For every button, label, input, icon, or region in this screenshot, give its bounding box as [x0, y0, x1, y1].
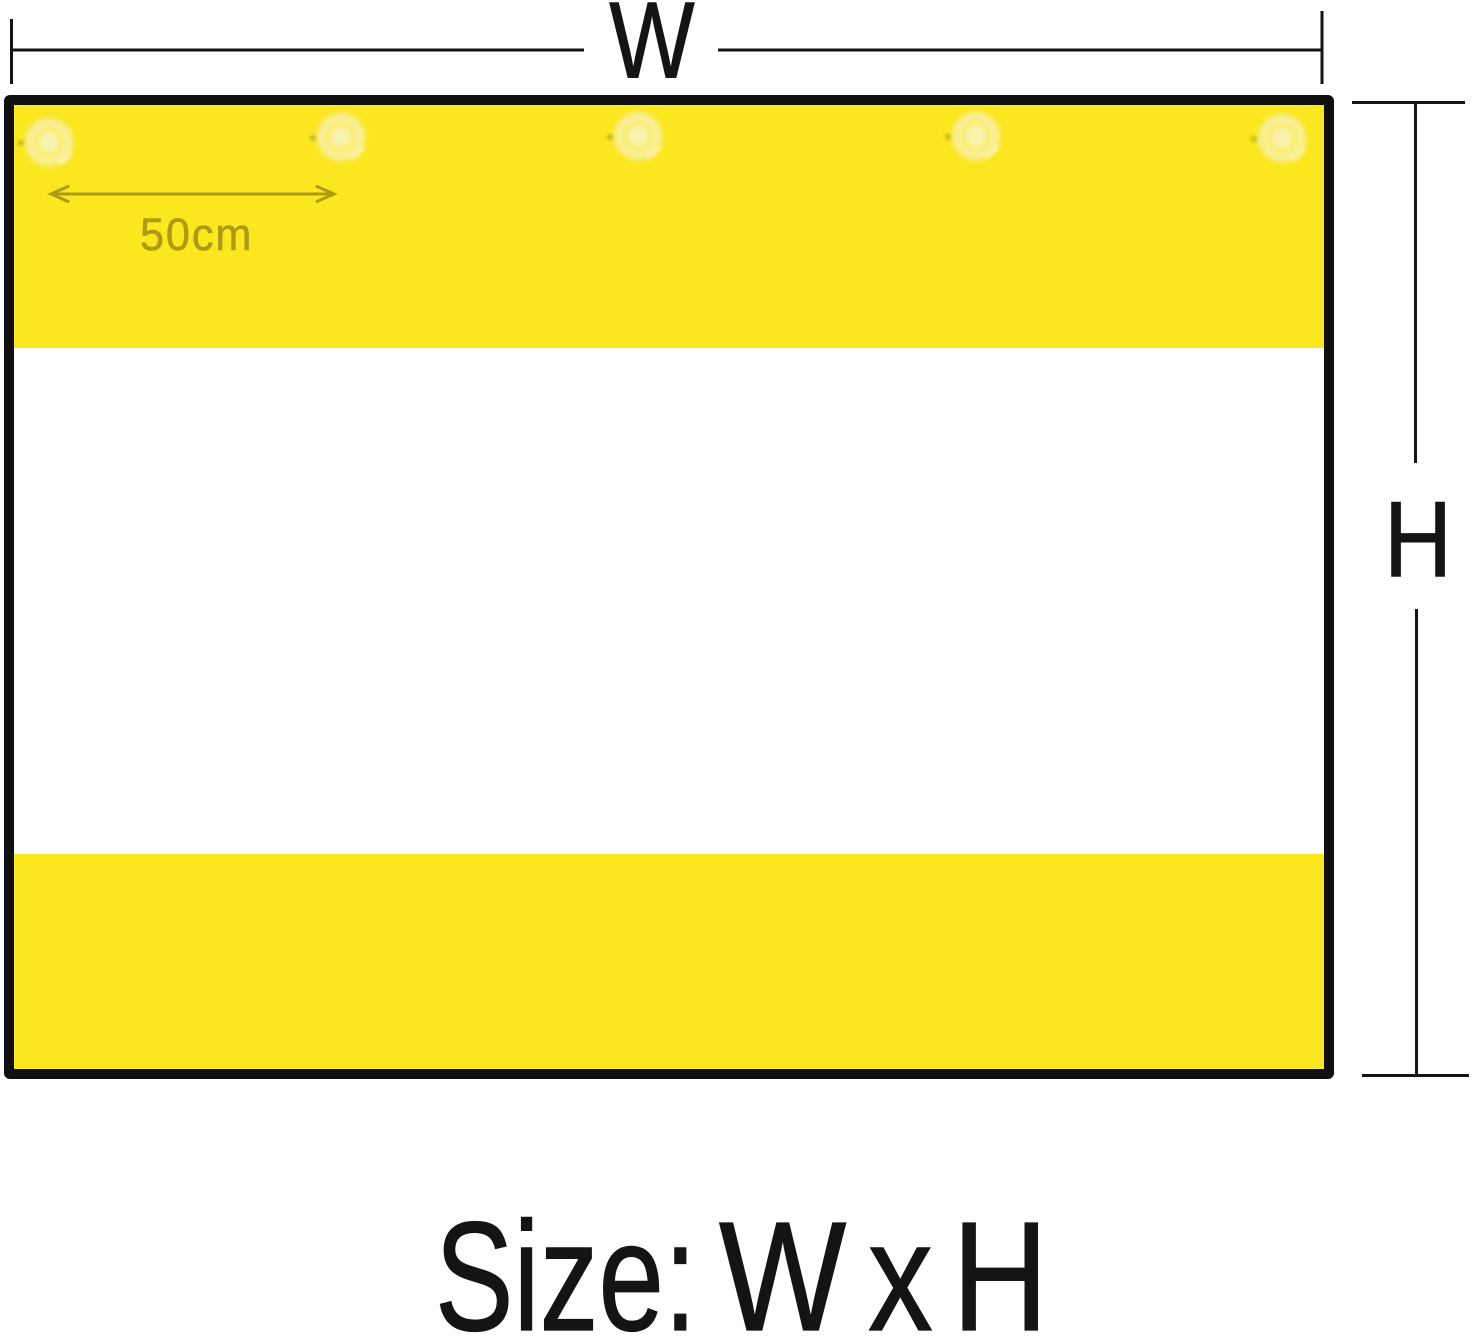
svg-text:W: W	[719, 1189, 846, 1337]
svg-text:x: x	[868, 1190, 933, 1337]
svg-text:W: W	[609, 0, 695, 101]
svg-text:H: H	[1384, 480, 1452, 600]
svg-text:50cm: 50cm	[140, 210, 253, 260]
svg-text:H: H	[952, 1189, 1048, 1337]
svg-text:Size:: Size:	[435, 1190, 697, 1337]
